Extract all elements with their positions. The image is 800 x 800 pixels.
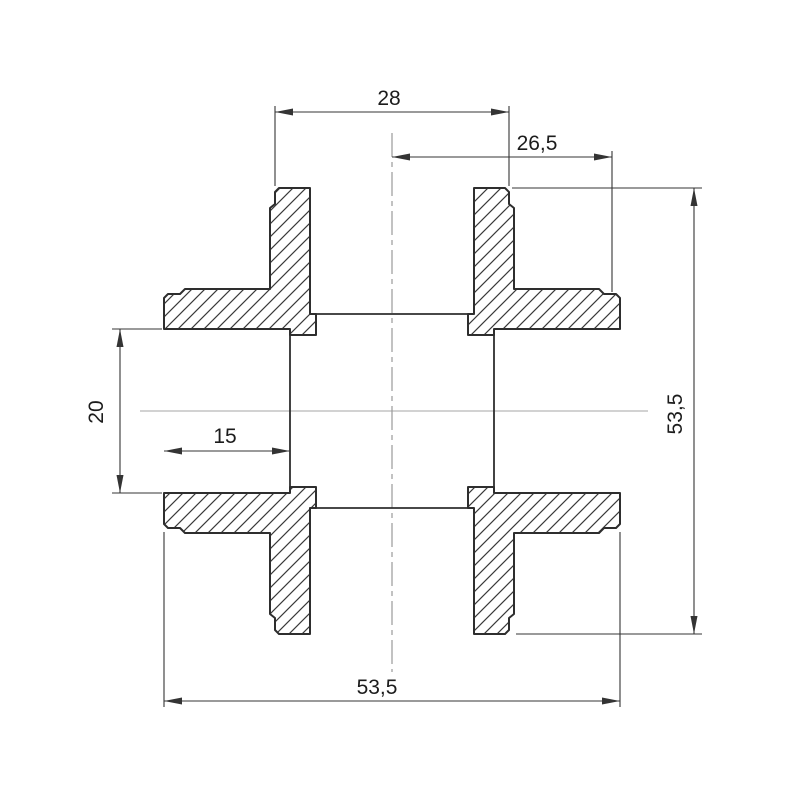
body-wall-bottom-right [468,487,620,634]
arrowhead [164,448,182,455]
arrowhead [117,329,124,347]
arrowhead [691,188,698,206]
dimension-label: 20 [85,400,108,423]
arrowhead [272,448,290,455]
arrowhead [594,154,612,161]
arrowhead [491,109,509,116]
arrowhead [691,616,698,634]
dimension-label: 53,5 [357,676,398,699]
arrowhead [275,109,293,116]
body-wall-top-right [468,188,620,335]
arrowhead [164,698,182,705]
body-wall-top-left [164,188,316,335]
arrowhead [602,698,620,705]
dimension-15: 15 [164,425,290,455]
dimension-label: 53,5 [664,394,687,435]
arrowhead [117,475,124,493]
dimension-label: 28 [377,87,400,110]
technical-drawing-page: 28 26,5 20 15 53,5 5 [0,0,800,800]
dimension-label: 15 [213,425,236,448]
centerlines [140,133,648,672]
arrowhead [392,154,410,161]
cross-fitting-section-drawing: 28 26,5 20 15 53,5 5 [0,0,800,800]
dimension-label: 26,5 [517,132,558,155]
body-wall-bottom-left [164,487,316,634]
